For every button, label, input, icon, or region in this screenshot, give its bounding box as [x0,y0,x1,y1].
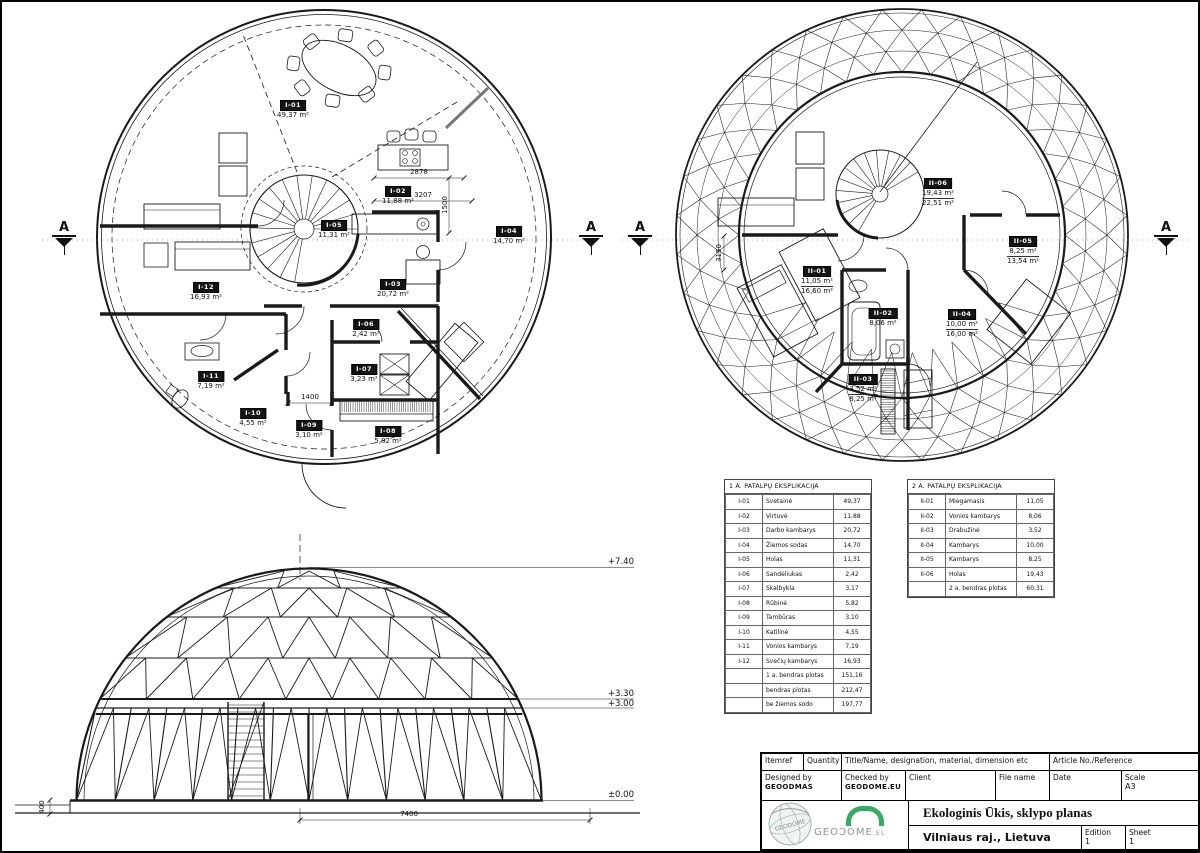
edition-cell: Edition 1 [1082,826,1126,849]
geodome-logo-text: GEOƆOME.EL [814,827,909,840]
second-floor-plan [622,9,1192,461]
cell-label: Date [1053,773,1071,782]
room-id: II-04 [948,309,977,320]
room-area-total: 16,60 m² [801,288,833,295]
table-cell: 11,05 [1017,495,1054,510]
table-cell: II-03 [909,524,946,539]
titleblock-client: Client [906,771,996,801]
room-area: 8,06 m² [869,320,898,327]
section-letter: A [1153,221,1179,234]
room-label-ii05: II-058,25 m²13,54 m² [1007,230,1039,266]
location-cell: Vilniaus raj., Lietuva [909,826,1082,849]
room-id: I-09 [296,420,322,431]
table-cell: Drabužinė [946,524,1017,539]
table-cell: 212,47 [834,683,871,698]
cell-label: Sheet [1129,828,1151,837]
table-cell [726,683,763,698]
edition-value: 1 [1085,837,1122,847]
dim-2878: 2878 [410,168,428,176]
room-area: 7,19 m² [197,383,224,390]
table-cell: I-05 [726,553,763,568]
room-label-i05: I-0511,31 m² [318,214,350,239]
table-cell: I-01 [726,495,763,510]
room-area: 14,70 m² [493,238,525,245]
table-cell: 197,77 [834,698,871,713]
table-cell: II-01 [909,495,946,510]
table-cell [726,669,763,684]
table-cell: Katilinė [763,625,834,640]
table-cell: Svečių kambarys [763,654,834,669]
dim-1400: 1400 [301,393,319,401]
marker-bar [52,235,76,237]
room-id: I-02 [385,186,411,197]
room-label-i02: I-0211,88 m² [382,180,414,205]
dim-3207: 3207 [414,191,432,199]
table-cell: 4,55 [834,625,871,640]
drawing-sheet: A A A A I-0149,37 m² I-0211,88 m² I-0320… [0,0,1200,853]
table-title: 2 A. PATALPŲ EKSPLIKACIJA [908,480,1054,494]
section-marker-left-2: A [627,221,653,255]
room-area-total: 22,51 m² [922,200,954,207]
table-cell: 19,43 [1017,567,1054,582]
room-id: I-04 [496,226,522,237]
table-cell: Miegamasis [946,495,1017,510]
dim-7400: 7400 [400,810,418,818]
titleblock-checked-by: Checked by GEODOME.EU [842,771,906,801]
room-id: I-03 [380,279,406,290]
explication-table-floor2: 2 A. PATALPŲ EKSPLIKACIJA II-01Miegamasi… [907,479,1055,598]
scale-value: A3 [1125,782,1197,792]
table-cell: Vonios kambarys [946,509,1017,524]
sheet-cell: Sheet 1 [1126,826,1200,849]
room-label-i06: I-062,42 m² [352,313,379,338]
marker-tail [591,246,592,255]
table-cell: I-04 [726,538,763,553]
table-cell: 20,72 [834,524,871,539]
marker-bar [1154,235,1178,237]
explication-table-floor1: 1 A. PATALPŲ EKSPLIKACIJA I-01Svetainė49… [724,479,872,714]
table-cell: 3,52 [1017,524,1054,539]
cell-label: Designed by [765,773,812,782]
table-cell: Vonios kambarys [763,640,834,655]
table-cell: 60,31 [1017,582,1054,597]
table-cell [726,698,763,713]
dim-1500: 1500 [441,196,449,214]
cell-label: Checked by [845,773,889,782]
table-cell: II-05 [909,553,946,568]
room-id: II-05 [1009,236,1038,247]
room-id: I-08 [375,426,401,437]
table-cell: I-08 [726,596,763,611]
room-area: 10,00 m² [946,321,978,330]
table-cell: I-02 [726,509,763,524]
room-area: 3,10 m² [295,432,322,439]
checked-by-value: GEODOME.EU [845,783,902,792]
titleblock-date: Date [1050,771,1122,801]
room-id: I-05 [321,220,347,231]
table-cell: Holas [763,553,834,568]
section-marker-right-1: A [578,221,604,255]
titleblock-titlecol: Title/Name, designation, material, dimen… [842,754,1050,771]
table-cell: Sandėliukas [763,567,834,582]
titleblock-quantity: Quantity [804,754,842,771]
dim-3150: 3150 [715,244,723,262]
room-id: II-02 [869,308,898,319]
table-cell: 8,25 [1017,553,1054,568]
table-cell: 11,88 [834,509,871,524]
room-label-ii06: II-0619,43 m²22,51 m² [922,172,954,208]
cell-label: Quantity [807,756,839,765]
section-letter: A [578,221,604,234]
room-area-total: 13,54 m² [1007,258,1039,265]
room-area: 5,82 m² [374,438,401,445]
table-cell: 16,93 [834,654,871,669]
room-id: I-06 [353,319,379,330]
table-cell: II-04 [909,538,946,553]
sheet-value: 1 [1129,837,1197,847]
cell-label: Itemref [765,756,792,765]
table-cell: Kambarys [946,538,1017,553]
table-cell: 1 a. bendras plotas [763,669,834,684]
titleblock-itemref: Itemref [762,754,804,771]
room-id: I-12 [193,282,219,293]
room-label-i09: I-093,10 m² [295,414,322,439]
titleblock-scale: Scale A3 [1122,771,1200,801]
room-label-ii02: II-028,06 m² [869,302,898,327]
table-cell: 8,06 [1017,509,1054,524]
title-block: Itemref Quantity Title/Name, designation… [760,752,1200,851]
room-id: I-07 [351,364,377,375]
room-label-i12: I-1216,93 m² [190,276,222,301]
company-stamp: GEODOME [762,801,828,847]
room-label-i01: I-0149,37 m² [277,94,309,119]
table-cell: I-10 [726,625,763,640]
room-area: 16,93 m² [190,294,222,301]
table-cell: Virtuvė [763,509,834,524]
table-cell: Žiemos sodas [763,538,834,553]
table-cell: Svetainė [763,495,834,510]
room-area: 20,72 m² [377,291,409,298]
geodome-arch-icon [846,806,884,826]
section-letter: A [51,221,77,234]
room-id: I-01 [280,100,306,111]
logo-word: GEOƆOME [814,827,873,838]
room-label-i11: I-117,19 m² [197,365,224,390]
room-area: 19,43 m² [922,190,954,199]
table-cell: 3,17 [834,582,871,597]
dome-elevation [15,534,640,824]
titleblock-filename: File name [996,771,1050,801]
table-cell: I-06 [726,567,763,582]
cell-label: File name [999,773,1035,782]
table-cell [909,582,946,597]
room-label-i10: I-104,55 m² [239,402,266,427]
table-cell: Kambarys [946,553,1017,568]
room-label-i08: I-085,82 m² [374,420,401,445]
table-title: 1 A. PATALPŲ EKSPLIKACIJA [725,480,871,494]
marker-tail [64,246,65,255]
cell-label: Edition [1085,828,1111,837]
level-zero: ±0.00 [608,790,634,800]
table-cell: 151,16 [834,669,871,684]
room-area-total: 16,00 m² [946,331,978,338]
table-cell: 3,10 [834,611,871,626]
table-cell: 7,19 [834,640,871,655]
room-area: 49,37 m² [277,112,309,119]
marker-bar [579,235,603,237]
room-label-i07: I-073,23 m² [350,358,377,383]
titleblock-logo-cell: GEODOME GEOƆOME.EL [762,801,909,849]
titleblock-article: Article No./Reference [1050,754,1200,771]
section-letter: A [627,221,653,234]
explication-rows: II-01Miegamasis11,05II-02Vonios kambarys… [908,494,1054,597]
table-cell: Darbo kambarys [763,524,834,539]
table-cell: 49,37 [834,495,871,510]
logo-tld: .EL [873,829,886,837]
designed-by-value: GEOODMAS [765,783,838,792]
room-area: 2,42 m² [352,331,379,338]
explication-rows: I-01Svetainė49,37I-02Virtuvė11,88I-03Dar… [725,494,871,713]
table-cell: Rūbinė [763,596,834,611]
marker-bar [628,235,652,237]
table-cell: bendras plotas [763,683,834,698]
room-area: 11,88 m² [382,198,414,205]
room-area: 8,25 m² [1007,248,1039,257]
room-label-ii03: II-033,52 m²8,25 m² [849,368,878,404]
table-cell: Holas [946,567,1017,582]
room-label-i03: I-0320,72 m² [377,273,409,298]
marker-tail [640,246,641,255]
room-id: II-03 [849,374,878,385]
room-area: 11,31 m² [318,232,350,239]
room-label-i04: I-0414,70 m² [493,220,525,245]
table-cell: be žiemos sodo [763,698,834,713]
marker-tail [1166,246,1167,255]
dim-400: 400 [38,800,46,813]
section-marker-right-2: A [1153,221,1179,255]
room-area: 11,05 m² [801,278,833,287]
cell-label: Article No./Reference [1053,756,1132,765]
room-area-total: 8,25 m² [849,396,878,403]
cell-label: Scale [1125,773,1145,782]
room-label-ii04: II-0410,00 m²16,00 m² [946,303,978,339]
table-cell: 5,82 [834,596,871,611]
table-cell: 2,42 [834,567,871,582]
table-cell: I-09 [726,611,763,626]
room-area: 3,23 m² [350,376,377,383]
table-cell: 10,00 [1017,538,1054,553]
table-cell: I-11 [726,640,763,655]
level-plus-7-40: +7.40 [608,557,634,567]
level-plus-3-30: +3.30 [608,689,634,699]
cell-label: Client [909,773,931,782]
location-text: Vilniaus raj., Lietuva [923,831,1051,845]
room-label-ii01: II-0111,05 m²16,60 m² [801,260,833,296]
table-cell: I-07 [726,582,763,597]
cell-label: Title/Name, designation, material, dimen… [845,756,1028,765]
titleblock-designed-by: Designed by GEOODMAS [762,771,842,801]
section-marker-left-1: A [51,221,77,255]
table-cell: I-12 [726,654,763,669]
room-area: 3,52 m² [849,386,878,395]
project-title-cell: Ekologinis Ūkis, sklypo planas [909,801,1200,826]
drawing-canvas [2,2,1200,853]
table-cell: II-06 [909,567,946,582]
table-cell: 11,31 [834,553,871,568]
table-cell: Tambūras [763,611,834,626]
table-cell: 2 a. bendras plotas [946,582,1017,597]
table-cell: II-02 [909,509,946,524]
project-title: Ekologinis Ūkis, sklypo planas [923,805,1092,821]
room-area: 4,55 m² [239,420,266,427]
table-cell: 14,70 [834,538,871,553]
room-id: I-10 [240,408,266,419]
level-plus-3-00: +3.00 [608,699,634,709]
room-id: II-06 [924,178,953,189]
table-cell: I-03 [726,524,763,539]
table-cell: Skalbykla [763,582,834,597]
room-id: II-01 [803,266,832,277]
room-id: I-11 [198,371,224,382]
